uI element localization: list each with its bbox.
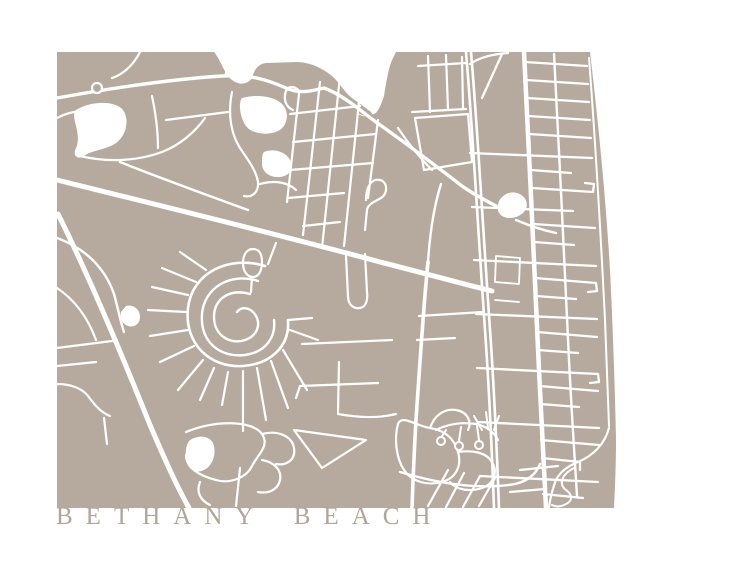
cul-de-sac-ring	[92, 83, 102, 93]
map-canvas	[0, 0, 750, 563]
road	[338, 362, 339, 412]
road	[225, 56, 232, 76]
cul-de-sac-ring	[437, 437, 445, 445]
landmass	[57, 52, 616, 508]
cul-de-sac-ring	[455, 442, 463, 450]
road	[462, 57, 463, 108]
map-poster: BETHANY BEACH	[0, 0, 750, 563]
road	[251, 277, 252, 292]
map-title: BETHANY BEACH	[56, 504, 444, 530]
cul-de-sac-ring	[475, 441, 483, 449]
